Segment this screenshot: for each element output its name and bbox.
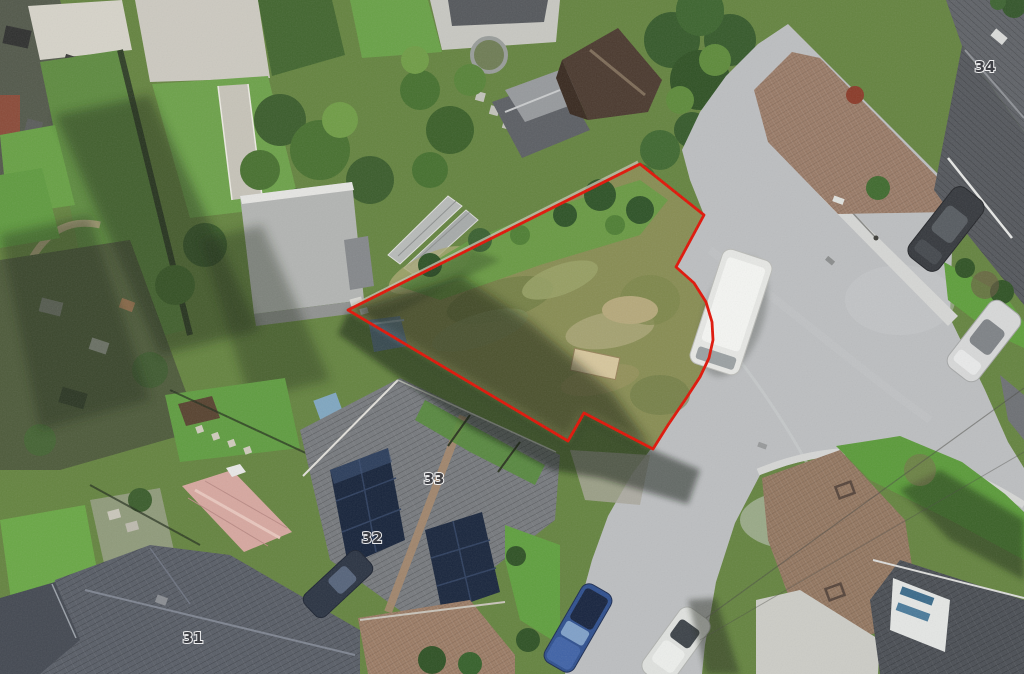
aerial-scene: 34 33 32 31	[0, 0, 1024, 674]
photo-grain-overlay	[0, 0, 1024, 674]
aerial-map-canvas[interactable]: 34 33 32 31	[0, 0, 1024, 674]
